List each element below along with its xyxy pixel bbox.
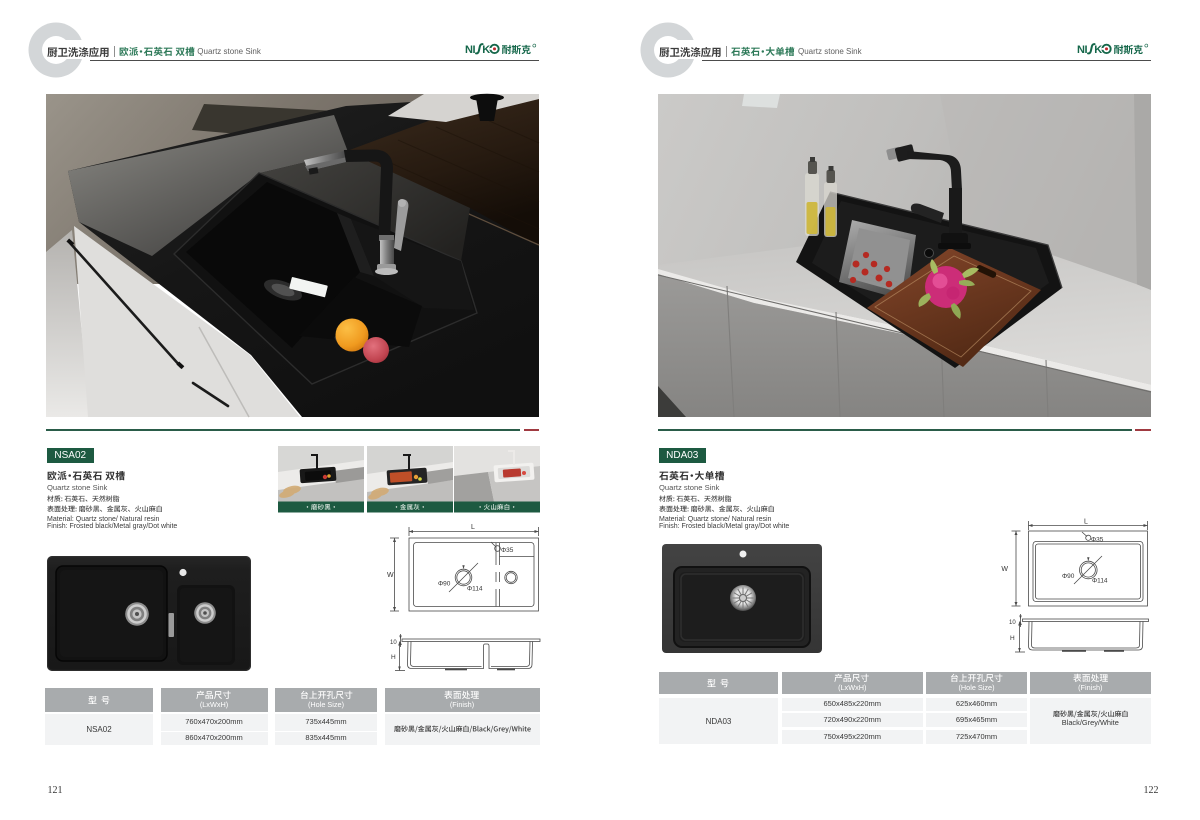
svg-text:K: K bbox=[482, 44, 490, 56]
svg-text:NI: NI bbox=[465, 44, 475, 56]
svg-text:Φ114: Φ114 bbox=[467, 586, 483, 593]
svg-text:H: H bbox=[391, 654, 396, 661]
svg-text:Φ35: Φ35 bbox=[501, 547, 514, 554]
svg-text:NI: NI bbox=[1077, 44, 1087, 56]
svg-text:K: K bbox=[1094, 44, 1102, 56]
svg-text:Φ90: Φ90 bbox=[438, 581, 451, 588]
svg-text:Φ90: Φ90 bbox=[1062, 573, 1075, 580]
svg-text:W: W bbox=[387, 572, 394, 579]
svg-text:10: 10 bbox=[390, 640, 397, 646]
svg-text:Φ114: Φ114 bbox=[1092, 578, 1108, 585]
svg-text:L: L bbox=[1084, 519, 1088, 526]
svg-text:H: H bbox=[1010, 635, 1015, 642]
svg-text:L: L bbox=[471, 524, 475, 531]
svg-text:10: 10 bbox=[1009, 620, 1016, 626]
svg-text:Φ35: Φ35 bbox=[1091, 537, 1104, 544]
svg-text:W: W bbox=[1001, 566, 1008, 573]
